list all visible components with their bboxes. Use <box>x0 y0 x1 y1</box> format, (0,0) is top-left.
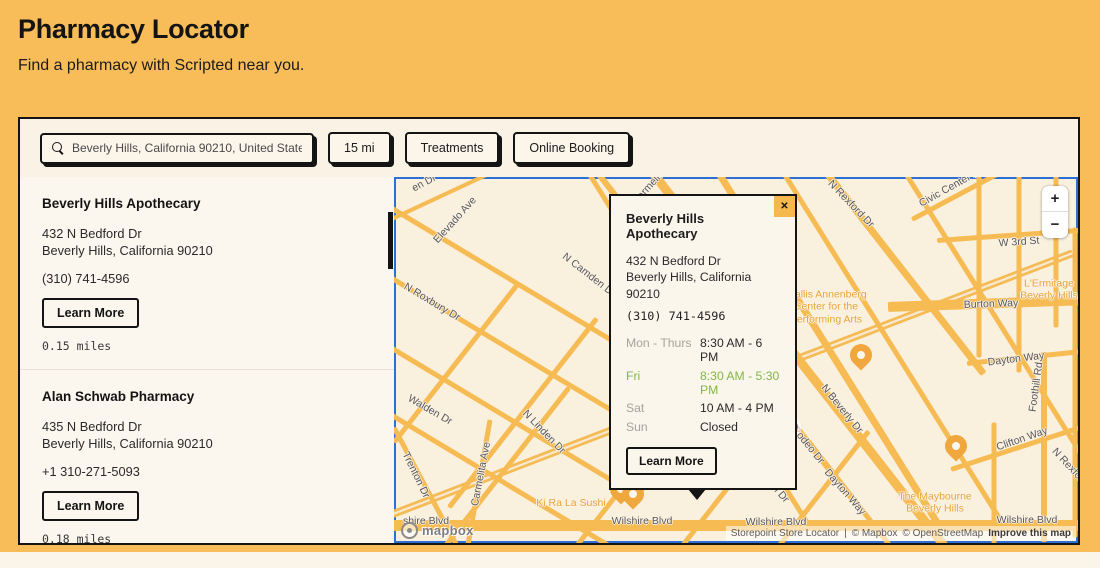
popup-phone: (310) 741-4596 <box>626 309 781 323</box>
hours-day: Fri <box>626 369 700 397</box>
pharmacy-address-line1: 435 N Bedford Dr <box>42 419 142 434</box>
zoom-out-button[interactable]: − <box>1042 212 1068 238</box>
pharmacy-phone: (310) 741-4596 <box>42 271 372 286</box>
street-label: Wilshire Blvd <box>612 515 673 527</box>
road-segment <box>1017 177 1022 372</box>
popup-pointer <box>688 489 706 500</box>
attribution-separator: | <box>844 526 847 541</box>
map-canvas[interactable]: en DrElevado AveN Roxbury DrN Camden DrW… <box>394 177 1078 543</box>
pharmacy-address: 432 N Bedford Dr Beverly Hills, Californ… <box>42 226 372 260</box>
search-icon <box>52 142 64 154</box>
popup-address: 432 N Bedford Dr Beverly Hills, Californ… <box>626 253 781 302</box>
poi-label: The MaybourneBeverly Hills <box>898 491 972 516</box>
mapbox-logo-text: mapbox <box>422 523 474 538</box>
popup-pharmacy-name: Beverly Hills Apothecary <box>626 211 781 241</box>
popup-address-line2: Beverly Hills, California 90210 <box>626 270 751 300</box>
pharmacy-card: Beverly Hills Apothecary 432 N Bedford D… <box>20 177 394 369</box>
pharmacy-name: Beverly Hills Apothecary <box>42 196 372 211</box>
mapbox-logo-icon <box>401 522 418 539</box>
pharmacy-distance: 0.15 miles <box>42 339 372 353</box>
street-label: Wilshire Blvd <box>997 514 1058 526</box>
popup-address-line1: 432 N Bedford Dr <box>626 254 721 268</box>
location-search-box[interactable] <box>40 133 314 164</box>
popup-hours-row: Sat10 AM - 4 PM <box>626 401 781 415</box>
treatments-filter-button[interactable]: Treatments <box>405 132 500 164</box>
map-zoom-controls: + − <box>1042 186 1068 238</box>
listings-scrollbar-thumb[interactable] <box>388 212 393 269</box>
attribution-improve-link[interactable]: Improve this map <box>988 526 1071 541</box>
street-label: W 3rd St <box>998 235 1040 250</box>
street-label: en Dr <box>410 177 438 194</box>
content-row: Beverly Hills Apothecary 432 N Bedford D… <box>20 177 1078 543</box>
page-subtitle: Find a pharmacy with Scripted near you. <box>18 57 304 75</box>
hours-time: 8:30 AM - 5:30 PM <box>700 369 781 397</box>
locator-panel: 15 mi Treatments Online Booking Beverly … <box>18 117 1080 545</box>
page-title: Pharmacy Locator <box>18 14 249 45</box>
street-label: Dayton Way <box>822 467 868 518</box>
online-booking-filter-button[interactable]: Online Booking <box>513 132 630 164</box>
poi-label: Ki Ra La Sushi <box>536 497 605 509</box>
mapbox-logo[interactable]: mapbox <box>401 522 474 539</box>
attribution-mapbox-link[interactable]: © Mapbox <box>852 526 898 541</box>
pharmacy-list: Beverly Hills Apothecary 432 N Bedford D… <box>20 177 394 543</box>
hours-time: 10 AM - 4 PM <box>700 401 774 415</box>
radius-filter-button[interactable]: 15 mi <box>328 132 391 164</box>
road-segment <box>1073 227 1078 537</box>
map-attribution: Storepoint Store Locator | © Mapbox © Op… <box>726 526 1076 541</box>
attribution-osm-link[interactable]: © OpenStreetMap <box>902 526 983 541</box>
location-search-input[interactable] <box>72 141 302 155</box>
pharmacy-popup: ✕ Beverly Hills Apothecary 432 N Bedford… <box>609 194 797 490</box>
road-segment <box>977 177 982 357</box>
learn-more-button[interactable]: Learn More <box>42 491 139 521</box>
street-label: N Rexford Dr <box>825 178 876 230</box>
popup-hours-row: Fri8:30 AM - 5:30 PM <box>626 369 781 397</box>
popup-hours-row: SunClosed <box>626 420 781 434</box>
pharmacy-name: Alan Schwab Pharmacy <box>42 389 372 404</box>
street-label: Burton Way <box>964 297 1019 311</box>
pharmacy-address-line2: Beverly Hills, California 90210 <box>42 243 213 258</box>
learn-more-button[interactable]: Learn More <box>42 298 139 328</box>
pharmacy-card: Alan Schwab Pharmacy 435 N Bedford Dr Be… <box>20 369 394 543</box>
street-label: Trenton Dr <box>400 450 433 500</box>
street-label: N Roxbury Dr <box>402 280 463 323</box>
poi-label: Wallis AnnenbergCenter for thePerforming… <box>785 288 866 325</box>
pharmacy-phone: +1 310-271-5093 <box>42 464 372 479</box>
popup-learn-more-button[interactable]: Learn More <box>626 447 717 475</box>
pharmacy-distance: 0.18 miles <box>42 532 372 543</box>
poi-label: L'ErmitageBeverly Hills <box>1020 278 1078 303</box>
close-icon[interactable]: ✕ <box>774 196 795 217</box>
pharmacy-address: 435 N Bedford Dr Beverly Hills, Californ… <box>42 419 372 453</box>
hours-day: Sun <box>626 420 700 434</box>
search-row: 15 mi Treatments Online Booking <box>20 119 1078 177</box>
map-marker-pin[interactable] <box>845 339 876 370</box>
popup-hours: Mon - Thurs8:30 AM - 6 PMFri8:30 AM - 5:… <box>626 336 781 434</box>
street-label: Elevado Ave <box>431 194 479 245</box>
hours-time: 8:30 AM - 6 PM <box>700 336 781 364</box>
popup-hours-row: Mon - Thurs8:30 AM - 6 PM <box>626 336 781 364</box>
hours-day: Sat <box>626 401 700 415</box>
hours-time: Closed <box>700 420 738 434</box>
pharmacy-address-line1: 432 N Bedford Dr <box>42 226 142 241</box>
pharmacy-address-line2: Beverly Hills, California 90210 <box>42 436 213 451</box>
hours-day: Mon - Thurs <box>626 336 700 364</box>
attribution-storepoint-link[interactable]: Storepoint Store Locator <box>731 526 839 541</box>
zoom-in-button[interactable]: + <box>1042 186 1068 212</box>
